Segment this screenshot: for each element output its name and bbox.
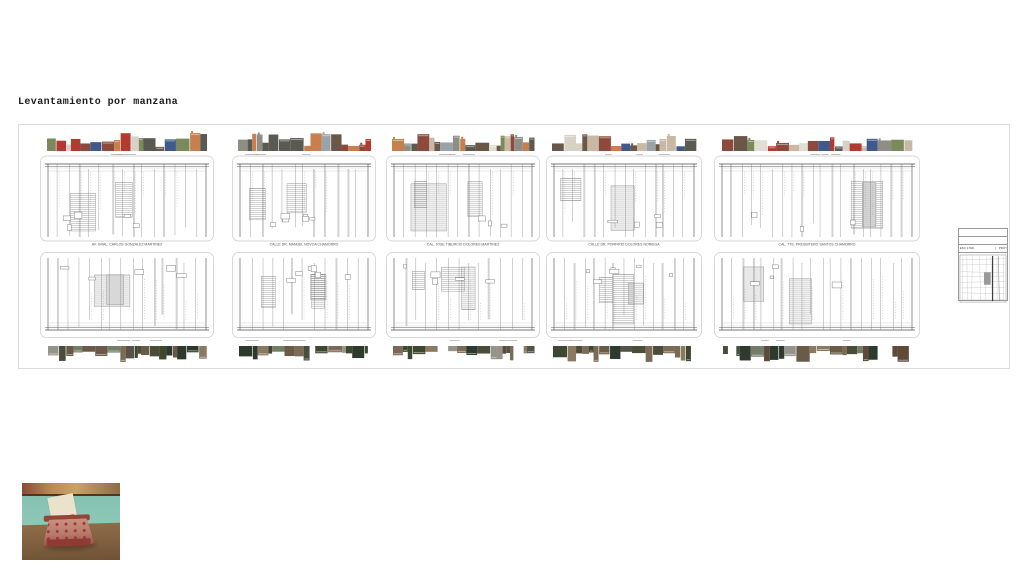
block-plan-drawing [231, 151, 377, 244]
street-photo-strip [391, 346, 535, 363]
drawing-sheet: SECTOR HERMANA ANILLO ZONA REGULACION CU… [18, 124, 1010, 369]
street-name-label: CAL. JOSE TIBURCIO DOLORES MARTINEZ [424, 243, 502, 247]
typewriter-photo [22, 483, 120, 560]
street-photo-strip [237, 346, 371, 363]
facade-photo-strip [237, 131, 371, 151]
block-plan-drawing [39, 251, 215, 344]
block-plan-drawing [385, 251, 541, 344]
block-plan-drawing [545, 251, 703, 344]
survey-block: AV. GRAL. CARLOS GONZALEZ MARTINEZ [39, 125, 215, 368]
legend-scale-text: ESC 1:500 [959, 247, 974, 250]
facade-photo-strip [551, 131, 696, 151]
street-name-label: AV. GRAL. CARLOS GONZALEZ MARTINEZ [83, 243, 171, 247]
portfolio-page: Levantamiento por manzana SECTOR HERMANA… [0, 0, 1024, 575]
facade-photo-strip [721, 131, 912, 151]
survey-block: CAL. JOSE TIBURCIO DOLORES MARTINEZ [385, 125, 541, 368]
block-plan-drawing [713, 151, 921, 244]
facade-photo-strip [46, 131, 208, 151]
street-photo-strip [551, 346, 696, 363]
legend-project-text: PROYECTO V [998, 247, 1007, 250]
facade-photo-strip [391, 131, 535, 151]
street-photo-strip [46, 346, 208, 363]
legend-divider [995, 247, 996, 250]
block-plan-drawing [385, 151, 541, 244]
street-name-label: CALLE DR. MANUEL NOVOA CHAMORRO [268, 243, 341, 247]
block-plan-drawing [39, 151, 215, 244]
legend-scale-row: ESC 1:500 PROYECTO V [959, 245, 1007, 253]
typewriter [39, 494, 99, 554]
legend-box: SECTOR HERMANA ANILLO ZONA REGULACION CU… [958, 228, 1008, 301]
legend-sector-row: SECTOR HERMANA ANILLO [959, 229, 1007, 237]
street-name-label: CALLE DR. PORFIRIO DOLORES NORIEGA [585, 243, 664, 247]
survey-block: CALLE DR. MANUEL NOVOA CHAMORRO [231, 125, 377, 368]
block-plan-drawing [545, 151, 703, 244]
street-photo-strip [721, 346, 912, 363]
block-plan-drawing [231, 251, 377, 344]
survey-block: CAL. TTE. PRESBITERO SANTOS CHAMORRO [713, 125, 921, 368]
survey-block: CALLE DR. PORFIRIO DOLORES NORIEGA [545, 125, 703, 368]
block-plan-drawing [713, 251, 921, 344]
street-name-label: CAL. TTE. PRESBITERO SANTOS CHAMORRO [765, 243, 869, 247]
page-title: Levantamiento por manzana [18, 97, 178, 108]
legend-zone-row: ZONA REGULACION CUARTEL [959, 237, 1007, 245]
key-map [959, 253, 1007, 304]
